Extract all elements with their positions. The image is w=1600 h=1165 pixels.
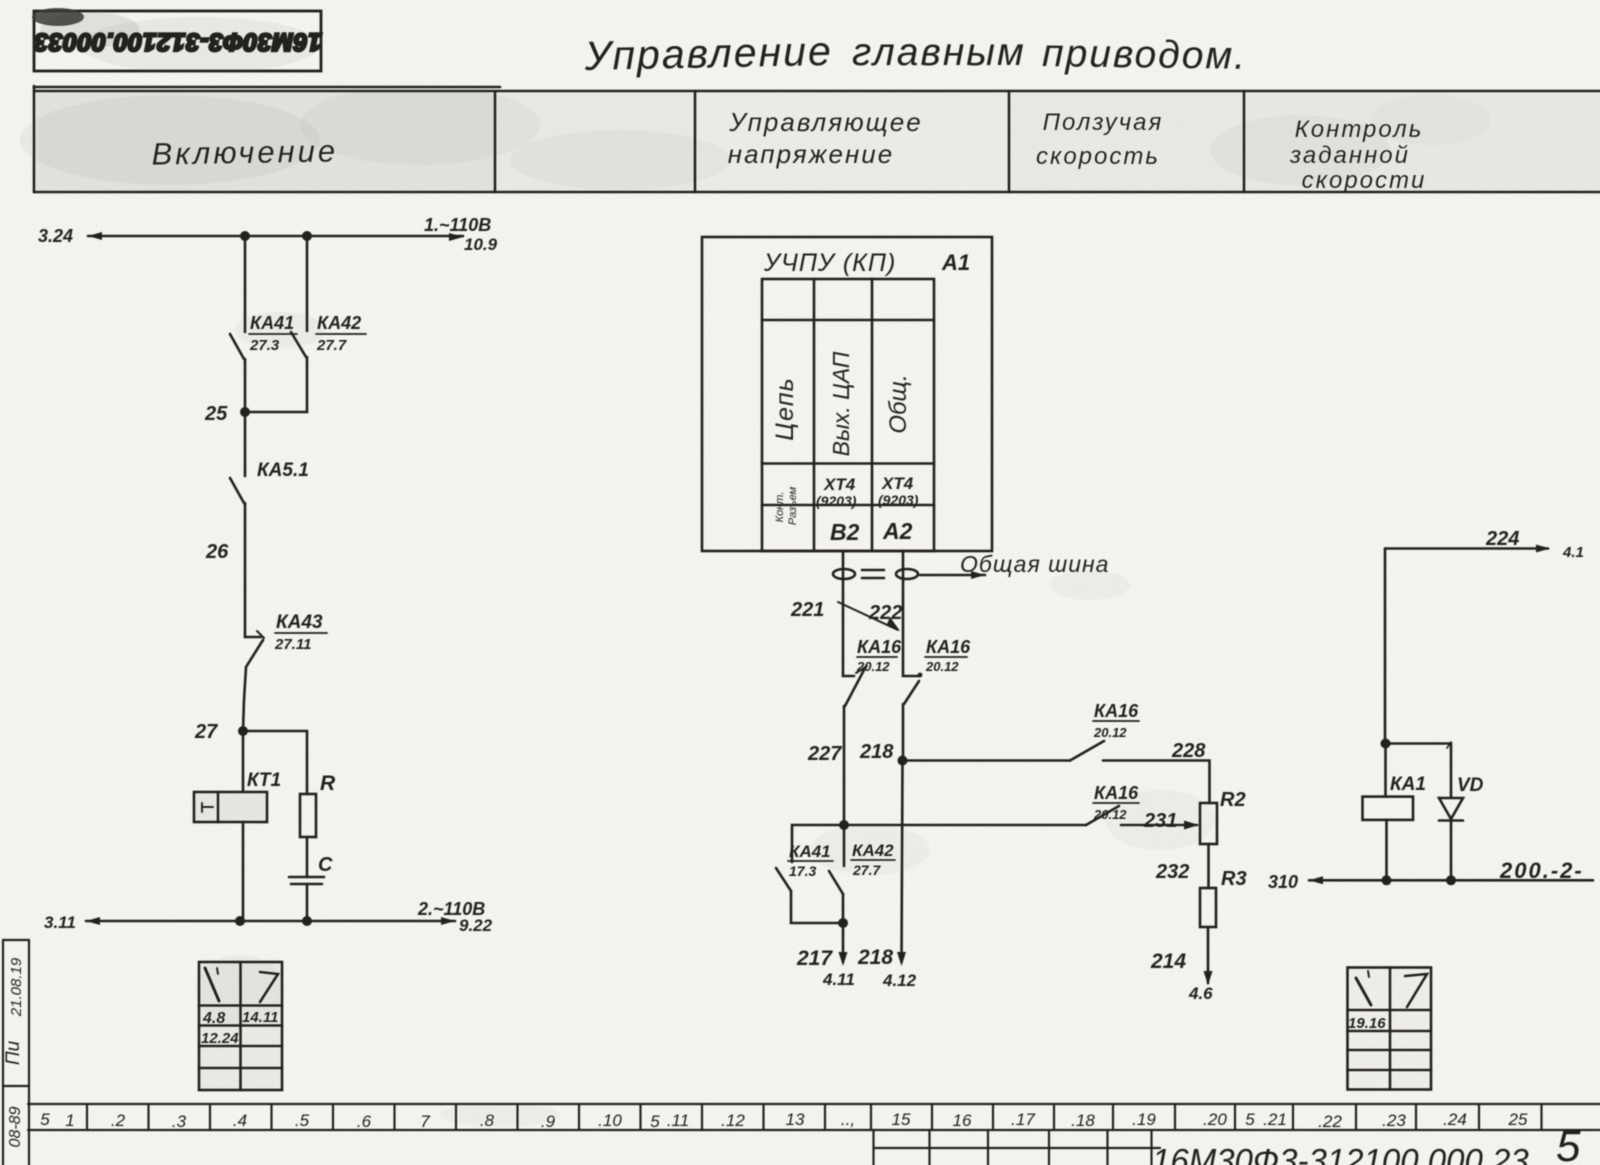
svg-text:26: 26	[205, 541, 229, 563]
svg-text:214: 214	[1150, 950, 1186, 973]
svg-text:КА5.1: КА5.1	[257, 460, 309, 481]
svg-text:1: 1	[65, 1111, 74, 1130]
svg-text:.3: .3	[172, 1112, 187, 1131]
svg-text:.22: .22	[1318, 1112, 1342, 1131]
svg-text:.21: .21	[1263, 1110, 1287, 1129]
svg-text:1.~110В: 1.~110В	[424, 215, 491, 235]
svg-text:.23: .23	[1382, 1111, 1406, 1130]
svg-text:(9203): (9203)	[878, 492, 919, 508]
svg-text:КА16: КА16	[857, 637, 902, 657]
svg-text:27.11: 27.11	[274, 636, 311, 653]
svg-text:232: 232	[1155, 861, 1189, 883]
svg-text:5: 5	[1556, 1122, 1581, 1165]
svg-text:.24: .24	[1443, 1110, 1467, 1129]
svg-text:14.11: 14.11	[242, 1009, 278, 1026]
svg-text:25: 25	[1508, 1110, 1528, 1129]
svg-text:15: 15	[892, 1110, 911, 1129]
svg-text:(9203): (9203)	[816, 493, 857, 509]
svg-text:КТ1: КТ1	[247, 770, 281, 791]
svg-text:В2: В2	[830, 519, 860, 545]
svg-text:4.8: 4.8	[202, 1010, 225, 1027]
svg-text:C: C	[318, 854, 333, 876]
svg-text:231: 231	[1143, 810, 1177, 832]
svg-text:.11: .11	[667, 1111, 689, 1130]
svg-text:Общ.: Общ.	[885, 374, 912, 433]
svg-text:А1: А1	[941, 250, 970, 275]
svg-text:Разъем: Разъем	[787, 486, 799, 525]
svg-text:20.12: 20.12	[1093, 807, 1127, 822]
svg-text:224: 224	[1485, 528, 1519, 550]
svg-text:.19: .19	[1132, 1110, 1156, 1129]
svg-text:16: 16	[953, 1111, 972, 1130]
svg-text:Вых. ЦАП: Вых. ЦАП	[828, 351, 854, 456]
svg-text:Включение: Включение	[151, 133, 338, 171]
svg-text:Общая шина: Общая шина	[960, 551, 1109, 577]
svg-text:Управление: Управление	[583, 28, 833, 79]
svg-text:УЧПУ (КП): УЧПУ (КП)	[763, 249, 896, 277]
svg-text:5: 5	[650, 1112, 660, 1131]
svg-text:.6: .6	[357, 1112, 372, 1131]
svg-text:R2: R2	[1220, 789, 1246, 811]
svg-text:.10: .10	[598, 1111, 622, 1130]
svg-text:.12: .12	[721, 1111, 745, 1130]
svg-text:221: 221	[790, 599, 824, 621]
svg-text:Цепь: Цепь	[771, 377, 799, 441]
svg-text:.5: .5	[295, 1111, 310, 1130]
svg-text:VD: VD	[1457, 775, 1484, 796]
svg-text:КА16: КА16	[1094, 701, 1139, 721]
svg-text:R: R	[320, 772, 336, 795]
svg-text:КА41: КА41	[789, 842, 831, 861]
svg-text:27.3: 27.3	[249, 337, 280, 354]
svg-text:228: 228	[1171, 740, 1206, 762]
svg-text:4.11: 4.11	[822, 970, 855, 989]
svg-text:222: 222	[868, 602, 902, 624]
svg-text:заданной: заданной	[1289, 142, 1410, 169]
svg-text:218: 218	[859, 741, 894, 763]
svg-text:227: 227	[807, 743, 842, 765]
svg-text:200.-2-: 200.-2-	[1499, 858, 1584, 883]
svg-text:КА41: КА41	[250, 313, 294, 333]
svg-text:12.24: 12.24	[201, 1030, 239, 1047]
svg-text:27: 27	[194, 721, 218, 743]
svg-text:21.08.19: 21.08.19	[8, 957, 25, 1017]
svg-text:скорости: скорости	[1302, 167, 1427, 194]
svg-text:.9: .9	[541, 1112, 556, 1131]
svg-text:4.12: 4.12	[882, 971, 917, 990]
svg-text:10.9: 10.9	[464, 235, 498, 254]
svg-text:напряжение: напряжение	[728, 139, 894, 169]
svg-text:КА42: КА42	[852, 841, 894, 860]
svg-text:16М30Ф3-312100.00033: 16М30Ф3-312100.00033	[34, 27, 322, 55]
svg-text:КА16: КА16	[926, 637, 971, 657]
svg-text:19.16: 19.16	[1348, 1015, 1386, 1032]
svg-text:ХТ4: ХТ4	[823, 475, 856, 494]
svg-text:КА16: КА16	[1094, 783, 1139, 803]
svg-text:Управляющее: Управляющее	[728, 107, 922, 137]
svg-text:А2: А2	[882, 518, 913, 544]
svg-text:КА43: КА43	[276, 612, 323, 633]
svg-text:20.12: 20.12	[1093, 725, 1127, 740]
svg-text:7: 7	[420, 1112, 430, 1131]
svg-text:3.24: 3.24	[38, 226, 73, 246]
svg-text:.17: .17	[1011, 1110, 1035, 1129]
svg-text:218: 218	[857, 946, 893, 969]
svg-text:4.6: 4.6	[1188, 984, 1213, 1003]
svg-text:.4: .4	[233, 1111, 247, 1130]
svg-text:КА42: КА42	[317, 313, 361, 333]
svg-text:главным: главным	[852, 31, 1026, 74]
svg-text:27.7: 27.7	[316, 337, 347, 354]
svg-text:20.12: 20.12	[856, 659, 890, 674]
svg-text:.8: .8	[480, 1111, 495, 1130]
svg-text:13: 13	[786, 1110, 805, 1129]
svg-text:17.3: 17.3	[789, 863, 816, 879]
svg-text:3.11: 3.11	[44, 913, 76, 932]
svg-text:5: 5	[1245, 1110, 1255, 1129]
svg-text:Ползучая: Ползучая	[1043, 109, 1164, 136]
svg-text:R3: R3	[1221, 868, 1247, 890]
svg-text:..,: ..,	[841, 1110, 855, 1129]
svg-text:08-89: 08-89	[7, 1106, 24, 1147]
svg-text:ХТ4: ХТ4	[881, 474, 914, 493]
svg-text:Контроль: Контроль	[1295, 116, 1424, 143]
svg-text:25: 25	[204, 403, 228, 425]
svg-text:16М30Ф3-312100.000.23: 16М30Ф3-312100.000.23	[1152, 1142, 1529, 1165]
svg-text:4.1: 4.1	[1562, 544, 1584, 561]
svg-text:5: 5	[40, 1110, 50, 1129]
svg-text:310: 310	[1268, 872, 1298, 892]
svg-text:.2: .2	[111, 1111, 126, 1130]
svg-text:приводом.: приводом.	[1042, 32, 1247, 78]
svg-text:КА1: КА1	[1390, 774, 1426, 795]
svg-text:Пи: Пи	[3, 1040, 24, 1065]
svg-text:217: 217	[796, 947, 833, 970]
svg-text:9.22: 9.22	[459, 916, 493, 935]
svg-text:27.7: 27.7	[852, 862, 881, 878]
svg-text:.20: .20	[1203, 1110, 1227, 1129]
svg-text:скорость: скорость	[1036, 143, 1160, 170]
svg-text:.18: .18	[1071, 1111, 1095, 1130]
svg-text:20.12: 20.12	[925, 659, 959, 674]
svg-text:Конт.: Конт.	[774, 492, 786, 523]
